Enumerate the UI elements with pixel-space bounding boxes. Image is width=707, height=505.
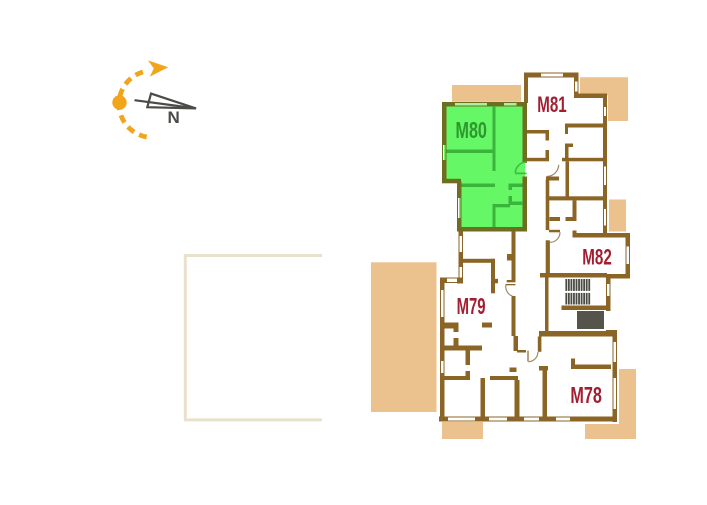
svg-text:M78: M78 [570, 382, 602, 408]
svg-text:M82: M82 [582, 244, 612, 269]
svg-text:M79: M79 [457, 293, 486, 319]
svg-text:M80: M80 [456, 117, 487, 143]
svg-text:N: N [168, 108, 180, 127]
svg-text:M81: M81 [537, 92, 566, 117]
